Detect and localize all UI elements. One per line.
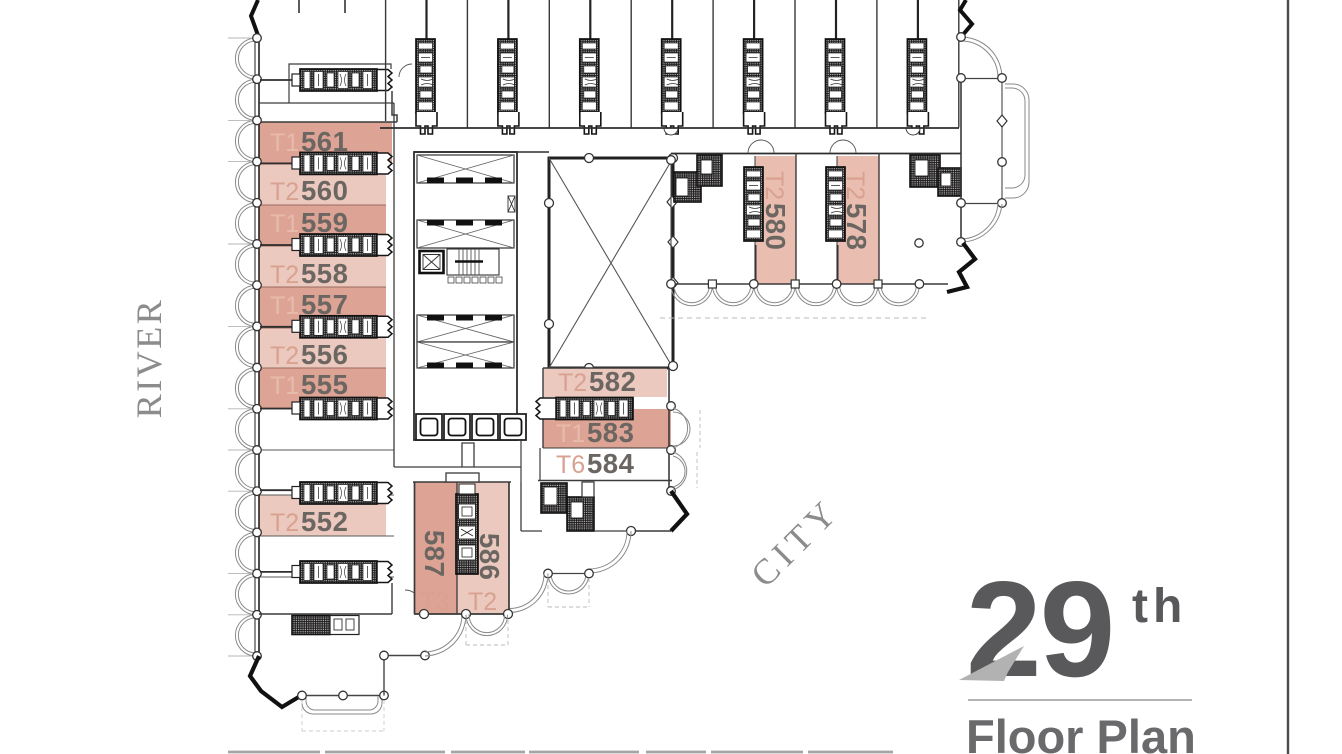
svg-text:587: 587 xyxy=(419,530,450,577)
svg-text:586: 586 xyxy=(474,533,505,580)
svg-text:T2: T2 xyxy=(468,588,497,616)
svg-text:555: 555 xyxy=(301,369,348,400)
svg-text:T2: T2 xyxy=(270,342,299,370)
svg-text:582: 582 xyxy=(589,366,636,397)
svg-text:578: 578 xyxy=(841,203,872,250)
svg-text:Floor Plan: Floor Plan xyxy=(966,710,1196,754)
svg-text:T3: T3 xyxy=(420,588,449,616)
svg-text:T2: T2 xyxy=(270,178,299,206)
svg-text:558: 558 xyxy=(301,258,348,289)
svg-text:552: 552 xyxy=(301,506,348,537)
svg-text:T2: T2 xyxy=(841,171,869,200)
svg-text:559: 559 xyxy=(301,207,348,238)
svg-text:584: 584 xyxy=(587,448,635,479)
svg-text:RIVER: RIVER xyxy=(129,298,169,419)
svg-text:T2: T2 xyxy=(270,509,299,537)
svg-text:T1: T1 xyxy=(270,210,299,238)
svg-text:T2: T2 xyxy=(558,369,587,397)
svg-text:557: 557 xyxy=(301,289,348,320)
svg-text:583: 583 xyxy=(587,417,634,448)
svg-text:T1: T1 xyxy=(270,129,299,157)
svg-text:th: th xyxy=(1132,580,1187,633)
svg-text:560: 560 xyxy=(301,175,348,206)
svg-text:T1: T1 xyxy=(270,372,299,400)
svg-text:29: 29 xyxy=(966,553,1113,705)
svg-text:T6: T6 xyxy=(556,451,585,479)
svg-text:561: 561 xyxy=(301,126,348,157)
svg-text:T1: T1 xyxy=(556,420,585,448)
svg-text:556: 556 xyxy=(301,339,348,370)
svg-text:580: 580 xyxy=(760,203,791,250)
svg-text:T2: T2 xyxy=(270,261,299,289)
svg-text:T2: T2 xyxy=(760,171,788,200)
svg-text:T1: T1 xyxy=(270,292,299,320)
